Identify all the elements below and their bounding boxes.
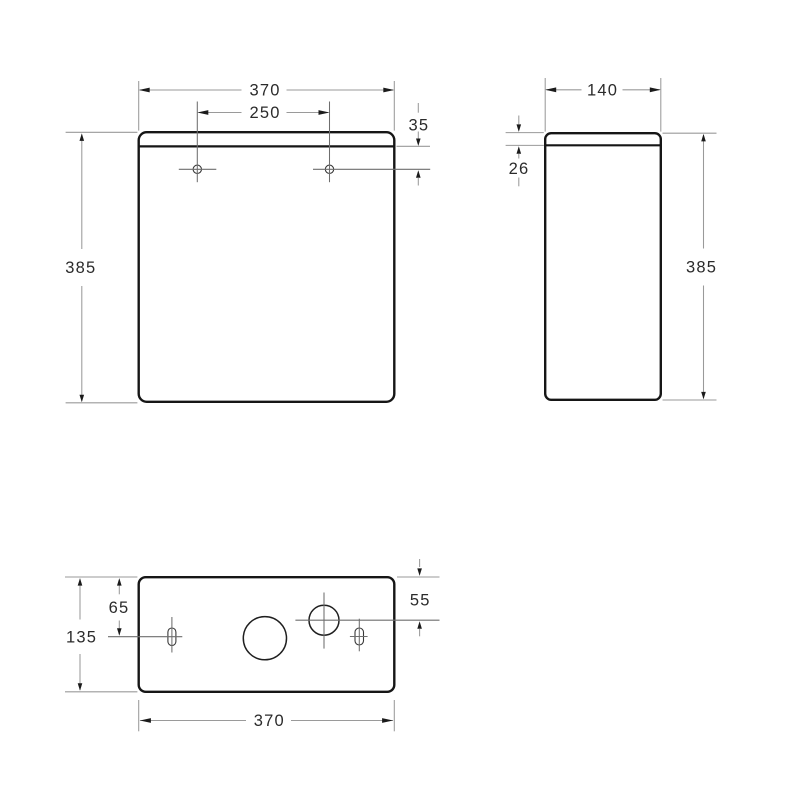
svg-text:55: 55 xyxy=(410,592,431,610)
svg-text:35: 35 xyxy=(409,116,430,134)
svg-text:140: 140 xyxy=(587,82,618,100)
svg-text:65: 65 xyxy=(109,599,130,617)
svg-text:26: 26 xyxy=(509,160,530,178)
svg-text:385: 385 xyxy=(686,258,717,276)
svg-text:250: 250 xyxy=(250,104,281,122)
svg-text:370: 370 xyxy=(254,712,285,730)
svg-text:370: 370 xyxy=(250,82,281,100)
svg-text:135: 135 xyxy=(66,629,97,647)
svg-text:385: 385 xyxy=(65,259,96,277)
